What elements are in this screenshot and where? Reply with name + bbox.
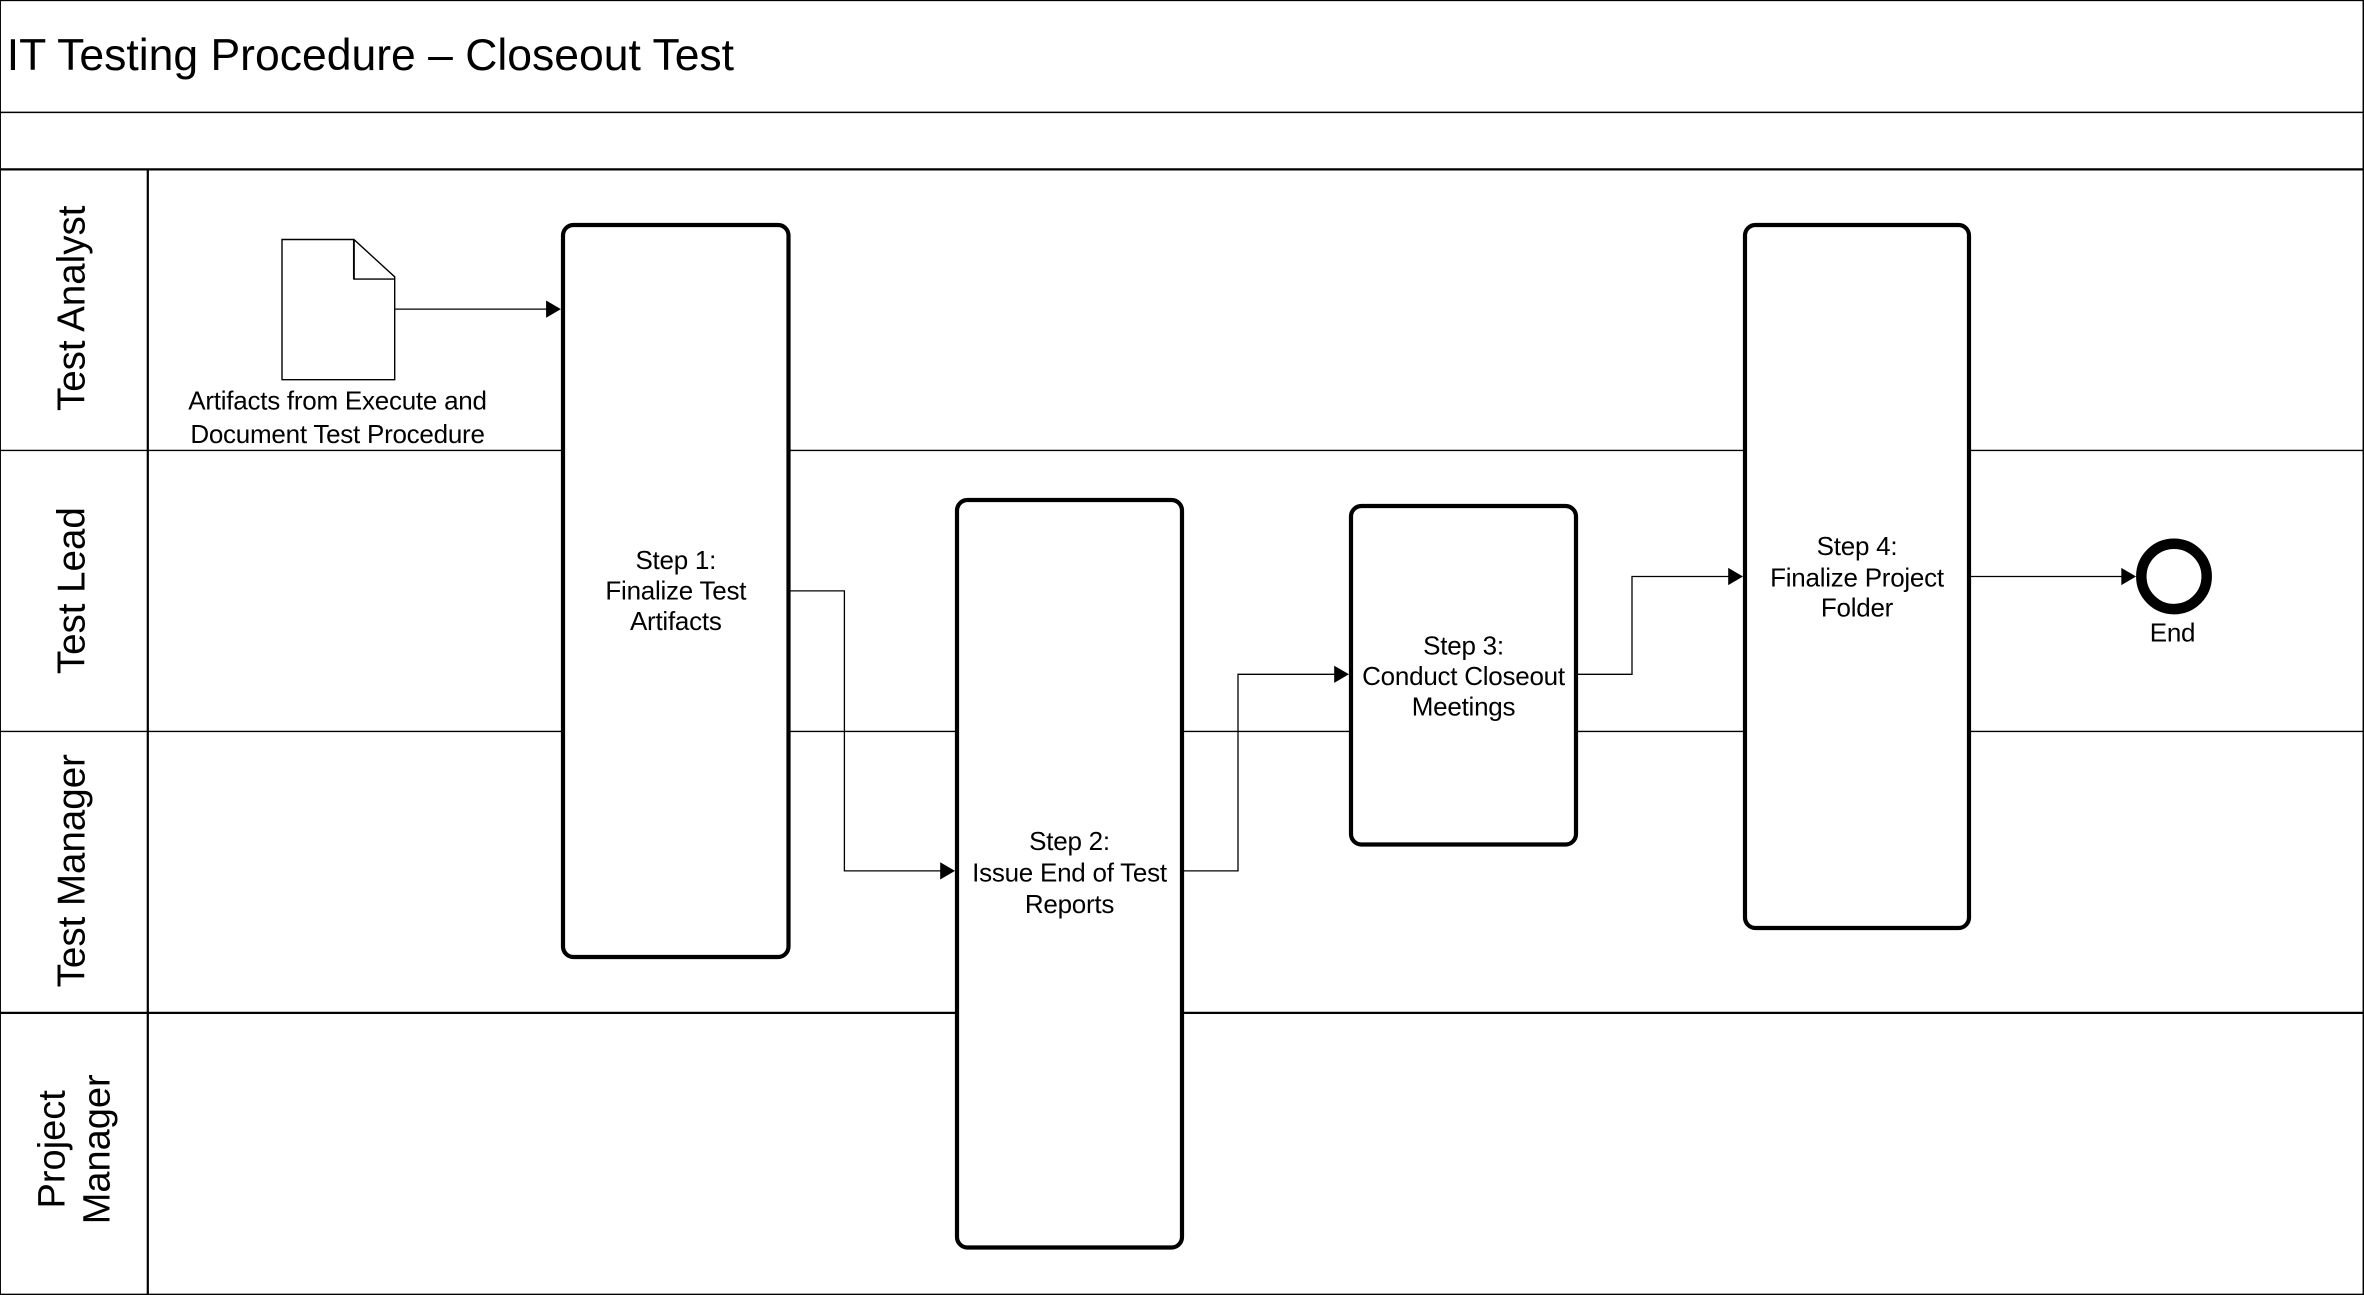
svg-text:Issue End of Test: Issue End of Test <box>972 858 1168 888</box>
svg-text:Step 4:: Step 4: <box>1817 531 1898 561</box>
svg-text:Test Manager: Test Manager <box>50 754 93 987</box>
svg-text:Project: Project <box>31 1090 73 1209</box>
svg-text:Step 2:: Step 2: <box>1029 826 1110 856</box>
svg-text:Step 1:: Step 1: <box>635 545 716 575</box>
svg-text:Conduct Closeout: Conduct Closeout <box>1362 661 1566 691</box>
svg-text:Reports: Reports <box>1025 889 1115 919</box>
svg-text:Finalize Test: Finalize Test <box>605 576 747 606</box>
svg-text:Folder: Folder <box>1821 593 1894 623</box>
svg-text:Finalize Project: Finalize Project <box>1770 562 1945 592</box>
svg-text:IT Testing Procedure – Closeou: IT Testing Procedure – Closeout Test <box>7 31 735 80</box>
svg-text:Test Analyst: Test Analyst <box>50 205 93 411</box>
svg-text:End: End <box>2150 618 2196 648</box>
svg-text:Step 3:: Step 3: <box>1423 630 1504 660</box>
svg-text:Manager: Manager <box>77 1074 119 1224</box>
svg-text:Artifacts: Artifacts <box>630 606 722 636</box>
svg-text:Meetings: Meetings <box>1412 692 1516 722</box>
svg-text:Artifacts from Execute and: Artifacts from Execute and <box>188 386 486 416</box>
svg-text:Document Test Procedure: Document Test Procedure <box>190 419 484 449</box>
svg-text:Test Lead: Test Lead <box>50 507 93 674</box>
